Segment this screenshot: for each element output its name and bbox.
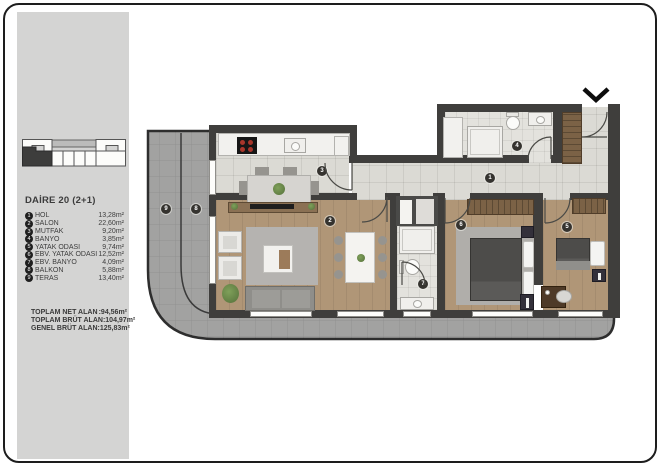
- bathroom-door-arc: [528, 137, 551, 159]
- floorplan-page: DAİRE 20 (2+1) 1HOL13,28m² 2SALON22,60m²…: [0, 0, 660, 466]
- master-door-arc: [445, 198, 470, 223]
- north-entry-arrow-icon: [584, 89, 608, 100]
- entry-door-arc: [582, 112, 607, 137]
- ensuite-door-arc: [402, 262, 425, 285]
- livingroom-door-arc: [362, 197, 387, 222]
- plan-overlay: [0, 0, 660, 466]
- floor-plan: 1 2 3 4 5 6 7 8 9: [0, 0, 660, 466]
- kitchen-door-arc: [325, 163, 352, 190]
- bedroom-door-arc: [545, 198, 570, 223]
